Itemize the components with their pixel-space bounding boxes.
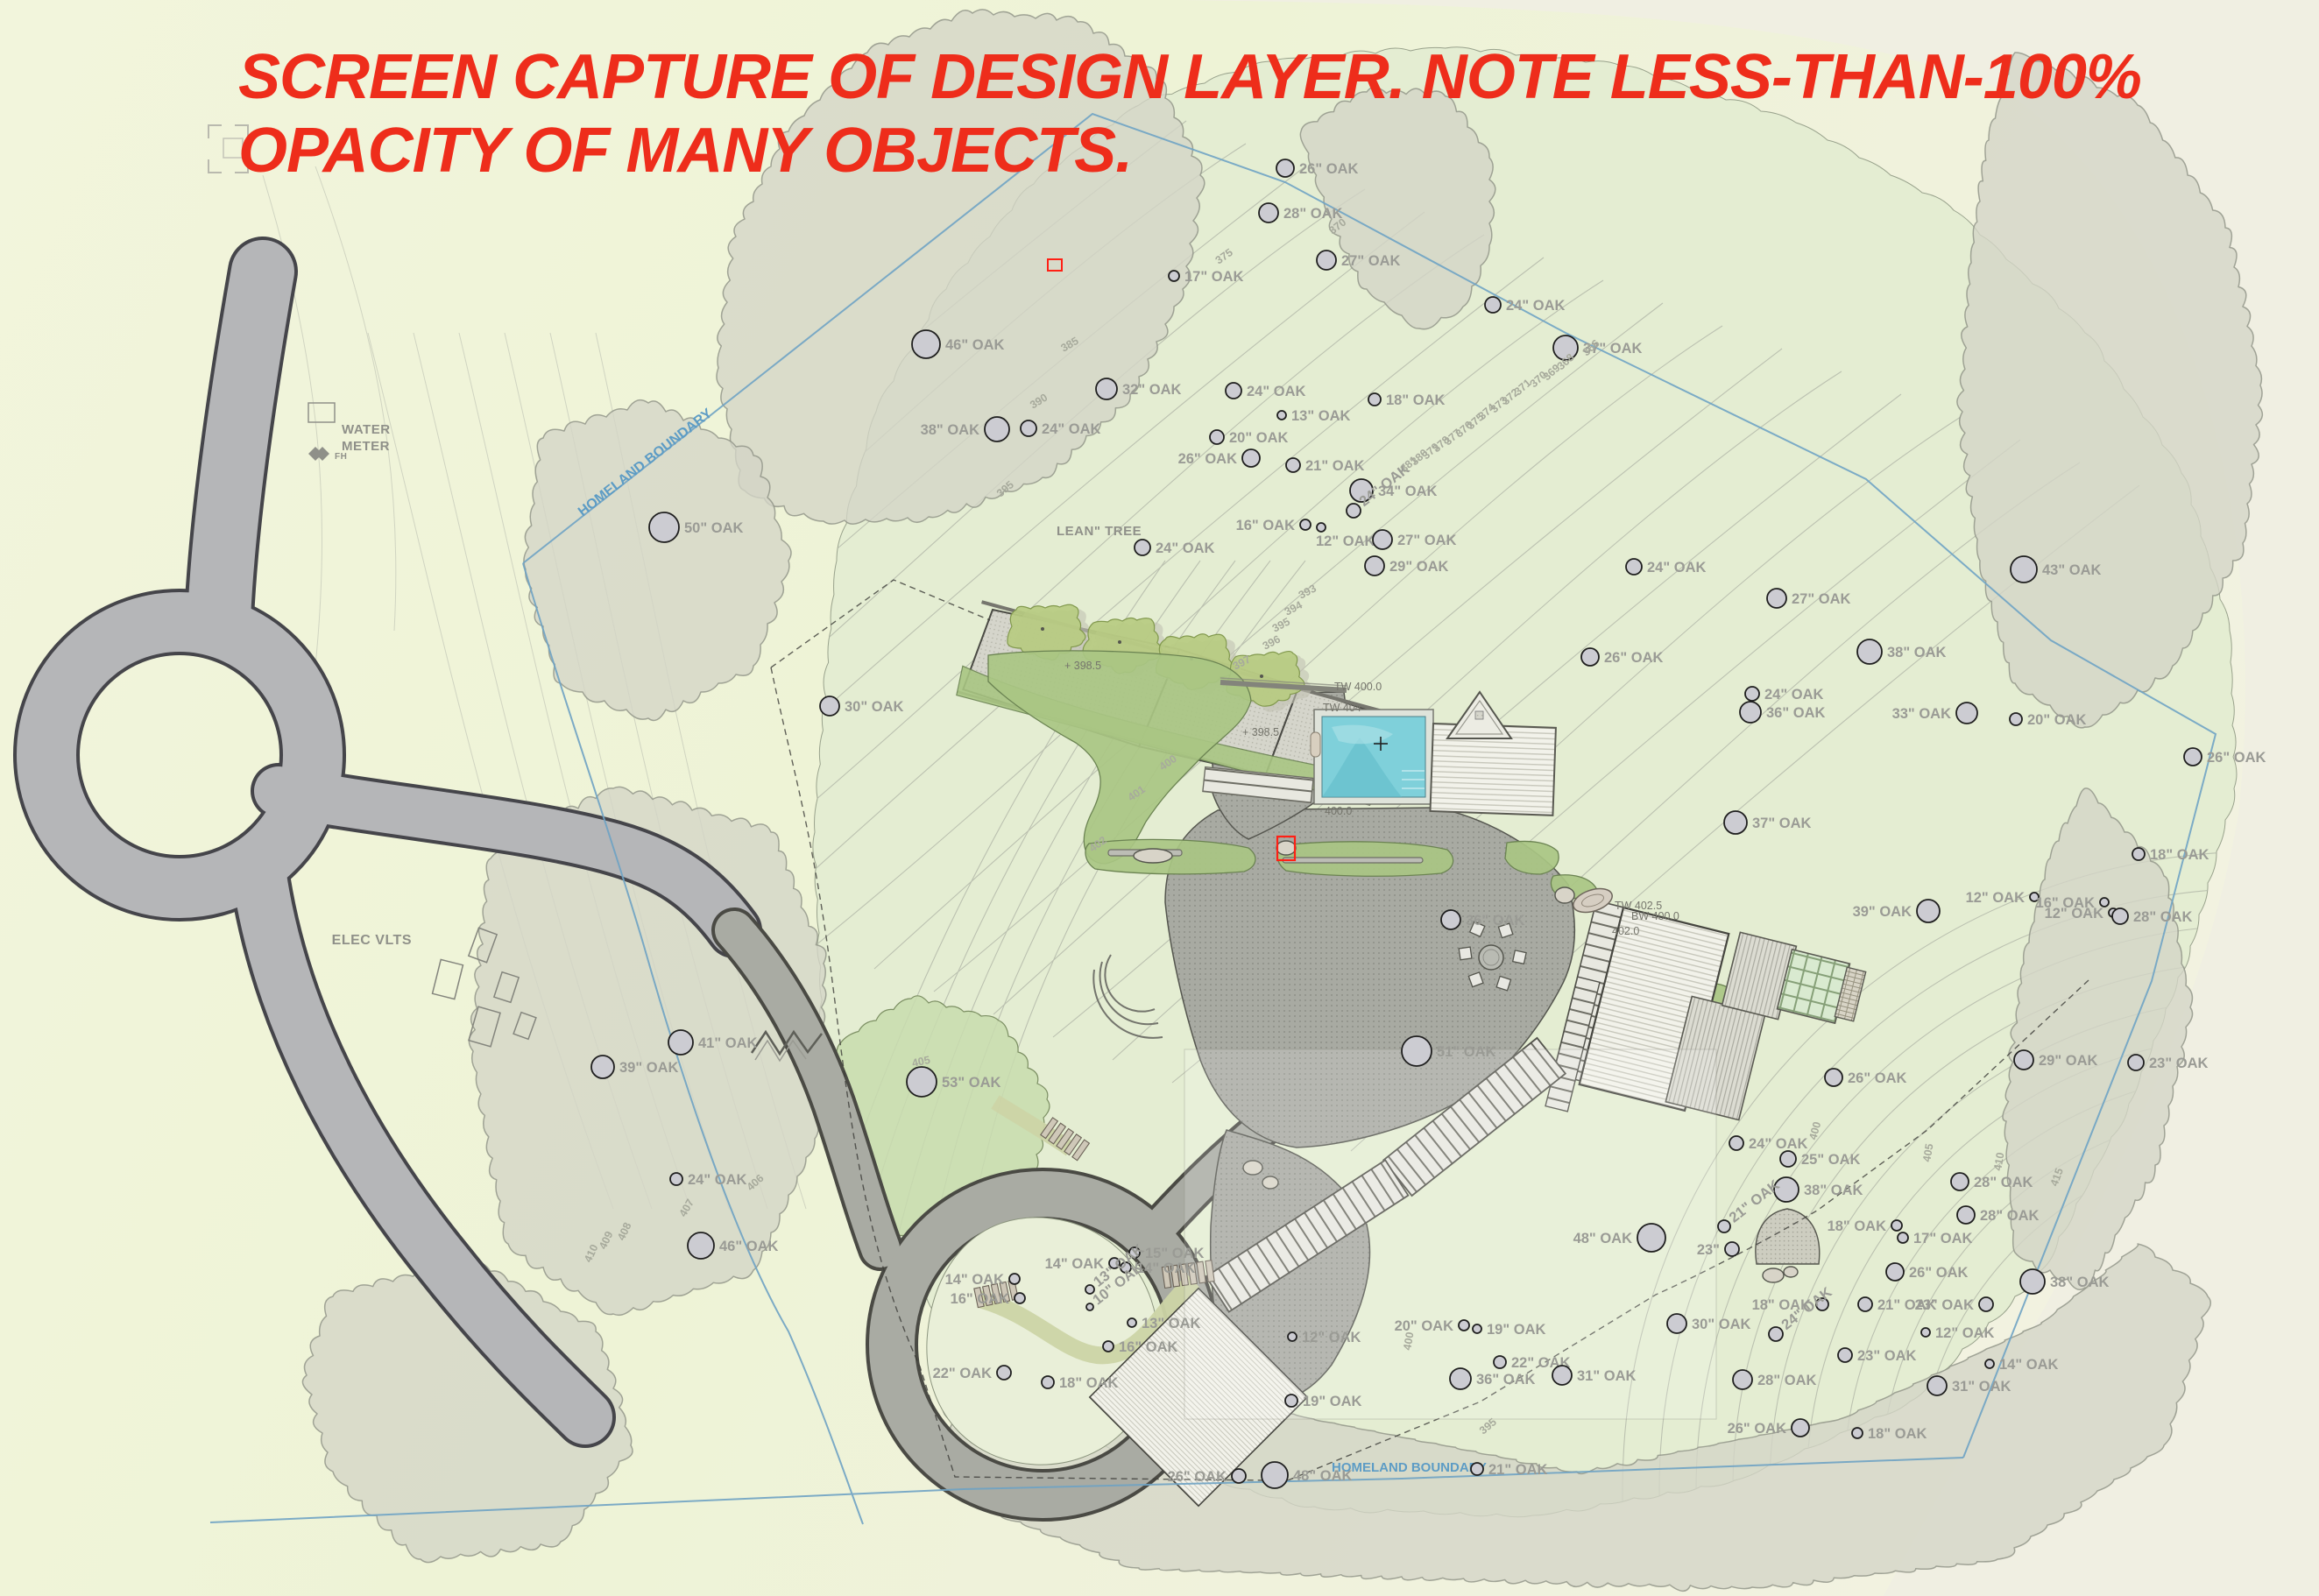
tree-symbol bbox=[1259, 203, 1278, 222]
tree-symbol bbox=[1128, 1318, 1136, 1327]
tree-label: 16" OAK bbox=[951, 1291, 1010, 1307]
tree-symbol bbox=[1724, 811, 1747, 834]
tree-label: 23" OAK bbox=[1857, 1348, 1917, 1364]
g4020-label: 402.0 bbox=[1612, 925, 1639, 937]
tree-label: 14" OAK bbox=[1045, 1256, 1105, 1272]
tree-symbol bbox=[2128, 1055, 2144, 1070]
tree-label: 18" OAK bbox=[1386, 392, 1446, 408]
tree-symbol bbox=[1891, 1220, 1902, 1231]
tree-symbol bbox=[1365, 556, 1384, 576]
tree-symbol bbox=[1494, 1356, 1506, 1368]
tree-label: 21" OAK bbox=[1305, 458, 1365, 474]
tree-symbol bbox=[1285, 1395, 1297, 1407]
tree-label: 18" OAK bbox=[2150, 847, 2209, 863]
tree-symbol bbox=[591, 1056, 614, 1078]
tree-symbol bbox=[1226, 383, 1241, 399]
tw400-label: TW 400.0 bbox=[1334, 681, 1382, 693]
tree-symbol bbox=[1921, 1328, 1930, 1337]
tree-label: 36" OAK bbox=[1476, 1372, 1536, 1388]
tree-label: 23" OAK bbox=[2149, 1056, 2209, 1071]
tree-symbol bbox=[907, 1067, 937, 1097]
water-meter-label-2: METER bbox=[342, 439, 390, 454]
tree-label: 21" OAK bbox=[1488, 1462, 1548, 1478]
tree-label: 36" OAK bbox=[1766, 705, 1826, 721]
tree-label: 12" OAK bbox=[1316, 533, 1375, 549]
tree-label: 12" OAK bbox=[1935, 1325, 1995, 1341]
tree-symbol bbox=[1957, 1206, 1975, 1224]
tree-symbol bbox=[1857, 639, 1882, 664]
tree-label: 13" OAK bbox=[1291, 408, 1351, 424]
tree-symbol bbox=[1347, 504, 1361, 518]
tree-symbol bbox=[2132, 848, 2145, 860]
tree-symbol bbox=[668, 1030, 693, 1055]
tree-label: 17" OAK bbox=[1913, 1231, 1973, 1246]
tree-symbol bbox=[1288, 1332, 1297, 1341]
tree-symbol bbox=[1917, 900, 1940, 922]
tree-symbol bbox=[997, 1366, 1011, 1380]
tree-label: 25" OAK bbox=[1801, 1152, 1861, 1168]
tree-label: 26" OAK bbox=[1604, 650, 1664, 666]
tree-label: 18" OAK bbox=[1059, 1375, 1119, 1391]
tree-trunk-dot bbox=[1041, 627, 1044, 631]
tree-label: 20" OAK bbox=[2027, 712, 2087, 728]
tree-label: 27" OAK bbox=[1792, 591, 1851, 607]
tree-label: 24" OAK bbox=[1749, 1136, 1808, 1152]
tree-label: 39" OAK bbox=[1853, 904, 1912, 920]
tree-label: 23" OAK bbox=[1915, 1297, 1975, 1313]
tree-label: 33" OAK bbox=[1892, 706, 1952, 722]
tree-symbol bbox=[2011, 556, 2037, 583]
tree-symbol bbox=[1780, 1151, 1796, 1167]
tree-label: 19" OAK bbox=[1303, 1394, 1362, 1409]
tree-label: 17" OAK bbox=[1184, 269, 1244, 285]
tree-symbol bbox=[985, 417, 1009, 441]
tree-symbol bbox=[1956, 703, 1977, 724]
tree-label: 30" OAK bbox=[845, 699, 904, 715]
tree-symbol bbox=[1858, 1297, 1872, 1311]
tree-symbol bbox=[1581, 648, 1599, 666]
tree-label: 48" OAK bbox=[1573, 1231, 1633, 1246]
tree-symbol bbox=[1042, 1376, 1054, 1388]
tree-symbol bbox=[1300, 519, 1311, 530]
tree-symbol bbox=[1368, 393, 1381, 406]
tree-symbol bbox=[2010, 713, 2022, 725]
tree-label: 16" OAK bbox=[1119, 1339, 1178, 1355]
tree-label: 24" OAK bbox=[688, 1172, 747, 1188]
tree-label: 43" OAK bbox=[2042, 562, 2102, 578]
tree-label: 28" OAK bbox=[1980, 1208, 2040, 1224]
tree-label: 26" OAK bbox=[1909, 1265, 1969, 1281]
tree-symbol bbox=[1985, 1359, 1994, 1368]
tree-symbol bbox=[1441, 910, 1460, 929]
tree-symbol bbox=[1740, 702, 1761, 723]
tree-label: 39" OAK bbox=[619, 1060, 679, 1076]
tree-symbol bbox=[1473, 1324, 1481, 1333]
site-plan-screenshot: HOMELAND BOUNDARY HOMELAND BOUNDARY WATE… bbox=[0, 0, 2319, 1596]
pool-grade-label: 400.0 bbox=[1325, 805, 1352, 817]
tree-label: 38" OAK bbox=[2050, 1275, 2110, 1290]
tree-symbol bbox=[1626, 559, 1642, 575]
tree-label: 13" OAK bbox=[1142, 1316, 1201, 1331]
tree-trunk-dot bbox=[1118, 640, 1121, 644]
tree-label: 53" OAK bbox=[942, 1075, 1001, 1091]
translucent-overlay-rect bbox=[1184, 1049, 1716, 1419]
tree-symbol bbox=[1169, 271, 1179, 281]
tree-label: 14" OAK bbox=[945, 1272, 1005, 1288]
tree-symbol bbox=[1792, 1419, 1809, 1437]
tree-symbol bbox=[1459, 1320, 1469, 1331]
tree-symbol bbox=[1317, 523, 1326, 532]
tree-label: 26" OAK bbox=[1728, 1421, 1787, 1437]
tree-label: 51" OAK bbox=[1437, 1044, 1496, 1060]
tree-symbol bbox=[1667, 1314, 1686, 1333]
tree-label: 31" OAK bbox=[1952, 1379, 2011, 1395]
tree-label: 46" OAK bbox=[719, 1239, 779, 1254]
tree-symbol bbox=[1898, 1232, 1908, 1243]
tw404-label: TW 404 bbox=[1323, 702, 1361, 714]
bed-grade-label: + 398.5 bbox=[1064, 660, 1101, 672]
tree-symbol bbox=[1725, 1242, 1739, 1256]
tree-symbol bbox=[1450, 1368, 1471, 1389]
tree-symbol bbox=[1276, 159, 1294, 177]
tree-label: 38" OAK bbox=[921, 422, 980, 438]
tree-symbol bbox=[1485, 297, 1501, 313]
tree-symbol bbox=[649, 512, 679, 542]
tree-symbol bbox=[2184, 748, 2202, 766]
tree-symbol bbox=[1729, 1136, 1743, 1150]
tree-label: 26" OAK bbox=[1178, 451, 1238, 467]
tree-label: 18" OAK bbox=[1868, 1426, 1927, 1442]
tree-label: 16" OAK bbox=[1236, 518, 1296, 533]
tree-symbol bbox=[1009, 1274, 1020, 1284]
tree-label: 28" OAK bbox=[1757, 1373, 1817, 1388]
tree-label: 28" OAK bbox=[1974, 1175, 2033, 1190]
tree-symbol bbox=[1733, 1370, 1752, 1389]
water-meter-label-1: WATER bbox=[342, 422, 391, 437]
tree-label: 30" OAK bbox=[1692, 1317, 1751, 1332]
tree-label: 26" OAK bbox=[2207, 750, 2266, 766]
pool-lounger bbox=[1311, 732, 1320, 757]
tree-label: 38" OAK bbox=[1804, 1183, 1863, 1198]
tree-label: 24" OAK bbox=[1764, 687, 1824, 703]
tree-symbol bbox=[1096, 378, 1117, 399]
tree-label: 12" OAK bbox=[2045, 906, 2104, 922]
tree-symbol bbox=[1838, 1348, 1852, 1362]
tree-label: 27" OAK bbox=[1341, 253, 1401, 269]
tree-label: 20" OAK bbox=[1229, 430, 1289, 446]
tree-symbol bbox=[1471, 1463, 1483, 1475]
tree-symbol bbox=[912, 330, 940, 358]
site-plan-canvas: HOMELAND BOUNDARY HOMELAND BOUNDARY WATE… bbox=[0, 0, 2319, 1596]
tree-label: 26" OAK bbox=[1299, 161, 1359, 177]
tree-symbol bbox=[1825, 1069, 1842, 1086]
patio-table bbox=[1479, 945, 1503, 970]
tree-symbol bbox=[820, 696, 839, 716]
tree-symbol bbox=[1745, 687, 1759, 701]
tree-symbol bbox=[1886, 1263, 1904, 1281]
tree-trunk-dot bbox=[1260, 674, 1263, 678]
tree-symbol bbox=[1103, 1341, 1114, 1352]
swimming-pool bbox=[1311, 710, 1433, 804]
tree-symbol bbox=[1637, 1224, 1665, 1252]
tree-symbol bbox=[1852, 1428, 1863, 1438]
tree-symbol bbox=[1317, 251, 1336, 270]
tree-label: 24" OAK bbox=[1506, 298, 1566, 314]
tree-symbol bbox=[1373, 530, 1392, 549]
tree-symbol bbox=[1135, 540, 1150, 555]
tree-label: 41" OAK bbox=[698, 1035, 758, 1051]
tree-label: 36" OAK bbox=[1466, 913, 1525, 929]
annotation-title-line1: SCREEN CAPTURE OF DESIGN LAYER. NOTE LES… bbox=[238, 42, 2141, 112]
tree-label: 24" OAK bbox=[1647, 560, 1707, 576]
tree-symbol bbox=[1769, 1327, 1783, 1341]
tree-label: 50" OAK bbox=[684, 520, 744, 536]
tree-symbol bbox=[2014, 1050, 2033, 1070]
tree-label: 24" OAK bbox=[1156, 540, 1215, 556]
tree-label: 18" OAK bbox=[1828, 1218, 1887, 1234]
tree-label: 12" OAK bbox=[1302, 1330, 1361, 1345]
tree-label: 24" OAK bbox=[1042, 421, 1101, 437]
tree-symbol bbox=[2020, 1269, 2045, 1294]
tree-symbol bbox=[1015, 1293, 1025, 1303]
tree-label: 12" OAK bbox=[1966, 890, 2026, 906]
tree-label: 24" OAK bbox=[1247, 384, 1306, 399]
lean-tree-label: LEAN" TREE bbox=[1057, 524, 1142, 539]
tree-symbol bbox=[1242, 449, 1260, 467]
tree-label: 46" OAK bbox=[945, 337, 1005, 353]
tree-symbol bbox=[2112, 908, 2128, 924]
tree-label: 14" OAK bbox=[1136, 1261, 1196, 1276]
tree-label: 38" OAK bbox=[1887, 645, 1947, 660]
tree-label: 32" OAK bbox=[1122, 382, 1182, 398]
terrace-grade-label: + 398.5 bbox=[1242, 726, 1279, 738]
tree-symbol bbox=[1767, 589, 1786, 608]
tree-symbol bbox=[1277, 411, 1286, 420]
tree-symbol bbox=[1086, 1303, 1093, 1310]
tree-label: 14" OAK bbox=[1999, 1357, 2059, 1373]
annotation-title-line2: OPACITY OF MANY OBJECTS. bbox=[238, 116, 1132, 186]
tree-label: 28" OAK bbox=[2133, 909, 2193, 925]
tree-symbol bbox=[670, 1173, 682, 1185]
tree-symbol bbox=[1262, 1462, 1288, 1488]
tree-label: 19" OAK bbox=[1487, 1322, 1546, 1338]
tree-label: 37" OAK bbox=[1752, 816, 1812, 831]
tree-symbol bbox=[1927, 1376, 1947, 1395]
tree-symbol bbox=[1951, 1173, 1969, 1190]
tree-symbol bbox=[1552, 1366, 1572, 1385]
tree-symbol bbox=[1718, 1220, 1730, 1232]
tree-label: 31" OAK bbox=[1577, 1368, 1637, 1384]
tree-symbol bbox=[688, 1232, 714, 1259]
tree-label: 29" OAK bbox=[2039, 1053, 2098, 1069]
tree-symbol bbox=[1286, 458, 1300, 472]
fh-label: FH bbox=[335, 452, 347, 462]
bw400-label: BW 400.0 bbox=[1631, 910, 1679, 922]
tree-label: 26" OAK bbox=[1848, 1070, 1907, 1086]
tree-label: 23" bbox=[1697, 1242, 1720, 1258]
tree-symbol bbox=[1402, 1036, 1432, 1066]
tree-label: 22" OAK bbox=[933, 1366, 993, 1381]
tree-label: 48" OAK bbox=[1293, 1468, 1353, 1484]
tree-label: 27" OAK bbox=[1397, 533, 1457, 548]
tree-symbol bbox=[1021, 420, 1036, 436]
water-meter-symbol bbox=[308, 403, 335, 461]
elec-vlts-label: ELEC VLTS bbox=[332, 933, 412, 948]
tree-label: 29" OAK bbox=[1389, 559, 1449, 575]
tree-label: 15" OAK bbox=[1145, 1246, 1205, 1261]
tree-label: 28" OAK bbox=[1283, 206, 1343, 222]
tree-symbol bbox=[1979, 1297, 1993, 1311]
tree-label: 26" OAK bbox=[1168, 1469, 1227, 1485]
tree-symbol bbox=[1210, 430, 1224, 444]
homeland-boundary-s-label: HOMELAND BOUNDARY bbox=[1332, 1460, 1487, 1475]
tree-symbol bbox=[1232, 1469, 1246, 1483]
